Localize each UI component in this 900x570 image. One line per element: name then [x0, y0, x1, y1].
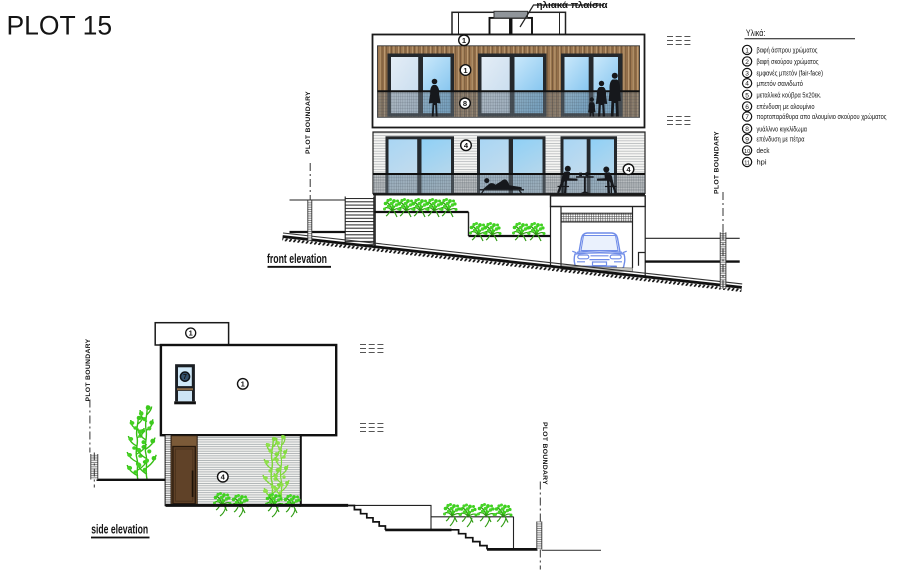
svg-text:7: 7 [183, 374, 187, 381]
svg-text:βαφή σκούρου χρώματος: βαφή σκούρου χρώματος [757, 57, 819, 66]
svg-text:γυάλλινο κιγκλίδωμα: γυάλλινο κιγκλίδωμα [757, 124, 808, 133]
svg-text:PLOT 15: PLOT 15 [7, 11, 113, 41]
svg-text:11: 11 [744, 161, 750, 167]
svg-text:deck: deck [757, 146, 770, 155]
svg-text:hpi: hpi [757, 158, 767, 167]
svg-text:7: 7 [745, 114, 749, 121]
svg-text:μεταλλικά κούβρα 5x20εκ.: μεταλλικά κούβρα 5x20εκ. [757, 91, 822, 100]
svg-text:επένδυση με πέτρα: επένδυση με πέτρα [757, 135, 805, 144]
svg-text:5: 5 [745, 92, 749, 99]
svg-text:8: 8 [463, 99, 467, 108]
svg-text:μπετόν σανιδωτό: μπετόν σανιδωτό [757, 79, 804, 88]
svg-text:PLOT BOUNDARY: PLOT BOUNDARY [305, 91, 312, 154]
svg-text:PLOT BOUNDARY: PLOT BOUNDARY [714, 131, 721, 194]
svg-text:εμφανές μπετόν (fair-face): εμφανές μπετόν (fair-face) [757, 69, 824, 78]
svg-text:side elevation: side elevation [91, 522, 148, 537]
svg-text:front elevation: front elevation [267, 251, 327, 266]
svg-text:10: 10 [744, 149, 750, 155]
svg-text:PLOT BOUNDARY: PLOT BOUNDARY [85, 338, 92, 401]
svg-text:επένδυση με αλουμίνιο: επένδυση με αλουμίνιο [757, 102, 815, 111]
svg-text:8: 8 [745, 126, 749, 133]
svg-text:Υλικά:: Υλικά: [746, 28, 766, 38]
svg-text:PLOT BOUNDARY: PLOT BOUNDARY [541, 422, 548, 485]
svg-text:9: 9 [745, 136, 749, 143]
svg-text:1: 1 [745, 47, 749, 54]
svg-text:πορτοπαράθυρα απο αλουμίνιο σκ: πορτοπαράθυρα απο αλουμίνιο σκούρου χρώμ… [757, 112, 887, 121]
svg-text:βαφή άσπρου χρώματος: βαφή άσπρου χρώματος [757, 46, 818, 55]
svg-text:3: 3 [745, 71, 749, 78]
svg-text:4: 4 [745, 81, 749, 88]
svg-text:2: 2 [745, 59, 749, 66]
svg-text:ηλιακά πλαίσια: ηλιακά πλαίσια [537, 0, 608, 11]
svg-text:6: 6 [745, 104, 749, 111]
svg-text:1: 1 [189, 329, 193, 338]
